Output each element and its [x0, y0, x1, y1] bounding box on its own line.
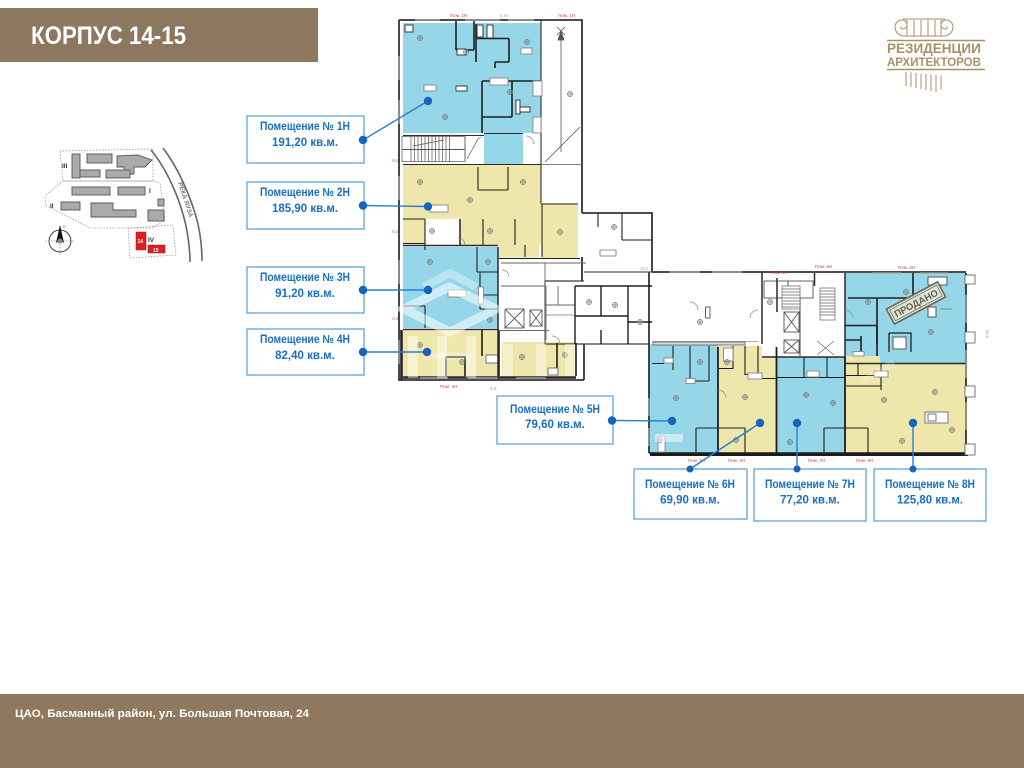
svg-text:РЕЗИДЕНЦИИ: РЕЗИДЕНЦИИ: [887, 41, 981, 56]
svg-text:191,20 кв.м.: 191,20 кв.м.: [272, 137, 338, 149]
svg-text:Пом. 8Н: Пом. 8Н: [898, 265, 915, 270]
svg-text:Помещение № 7Н: Помещение № 7Н: [765, 479, 855, 491]
svg-text:Помещение № 2Н: Помещение № 2Н: [260, 187, 350, 199]
svg-text:12,2: 12,2: [640, 266, 649, 271]
svg-text:Помещение № 5Н: Помещение № 5Н: [510, 404, 600, 416]
svg-text:4,75: 4,75: [500, 13, 509, 18]
svg-text:Пом. 1Н: Пом. 1Н: [450, 13, 467, 18]
svg-text:Помещение № 6Н: Помещение № 6Н: [645, 479, 735, 491]
svg-text:С: С: [63, 224, 66, 229]
svg-text:Пом. 8Н: Пом. 8Н: [856, 458, 873, 463]
svg-text:69,90 кв.м.: 69,90 кв.м.: [660, 495, 720, 507]
svg-text:ЦАО, Басманный район, ул. Боль: ЦАО, Басманный район, ул. Большая Почтов…: [15, 708, 310, 720]
svg-text:3,4: 3,4: [450, 132, 456, 137]
svg-text:Пом. 6Н: Пом. 6Н: [728, 458, 745, 463]
svg-text:30,5: 30,5: [985, 330, 990, 339]
svg-text:П.2: П.2: [392, 158, 399, 163]
svg-text:Помещение № 1Н: Помещение № 1Н: [260, 121, 350, 133]
svg-text:П.3: П.3: [392, 316, 399, 321]
svg-text:Помещение № 3Н: Помещение № 3Н: [260, 272, 350, 284]
svg-text:91,20 кв.м.: 91,20 кв.м.: [275, 288, 335, 300]
svg-text:Пом. 5Н: Пом. 5Н: [770, 270, 787, 275]
svg-text:П.2: П.2: [392, 229, 399, 234]
svg-text:185,90 кв.м.: 185,90 кв.м.: [272, 203, 338, 215]
svg-text:Пом. 4Н: Пом. 4Н: [440, 384, 457, 389]
svg-text:Пом. 7Н: Пом. 7Н: [808, 458, 825, 463]
svg-text:79,60 кв.м.: 79,60 кв.м.: [525, 419, 585, 431]
svg-text:4-6: 4-6: [490, 386, 497, 391]
svg-text:Пом. 1Н: Пом. 1Н: [558, 13, 575, 18]
svg-text:Помещение № 8Н: Помещение № 8Н: [885, 479, 975, 491]
svg-text:III: III: [62, 163, 68, 170]
svg-text:14: 14: [138, 239, 144, 245]
svg-text:82,40 кв.м.: 82,40 кв.м.: [275, 350, 335, 362]
svg-text:Помещение № 4Н: Помещение № 4Н: [260, 334, 350, 346]
svg-text:15: 15: [153, 248, 159, 254]
svg-text:АРХИТЕКТОРОВ: АРХИТЕКТОРОВ: [887, 57, 981, 69]
svg-text:КОРПУС 14-15: КОРПУС 14-15: [31, 22, 186, 50]
svg-text:Пом. 6Н: Пом. 6Н: [815, 264, 832, 269]
svg-text:77,20 кв.м.: 77,20 кв.м.: [780, 495, 840, 507]
svg-text:II: II: [50, 203, 54, 210]
svg-text:125,80 кв.м.: 125,80 кв.м.: [897, 495, 963, 507]
svg-text:I: I: [149, 188, 151, 195]
svg-text:IV: IV: [148, 237, 155, 244]
